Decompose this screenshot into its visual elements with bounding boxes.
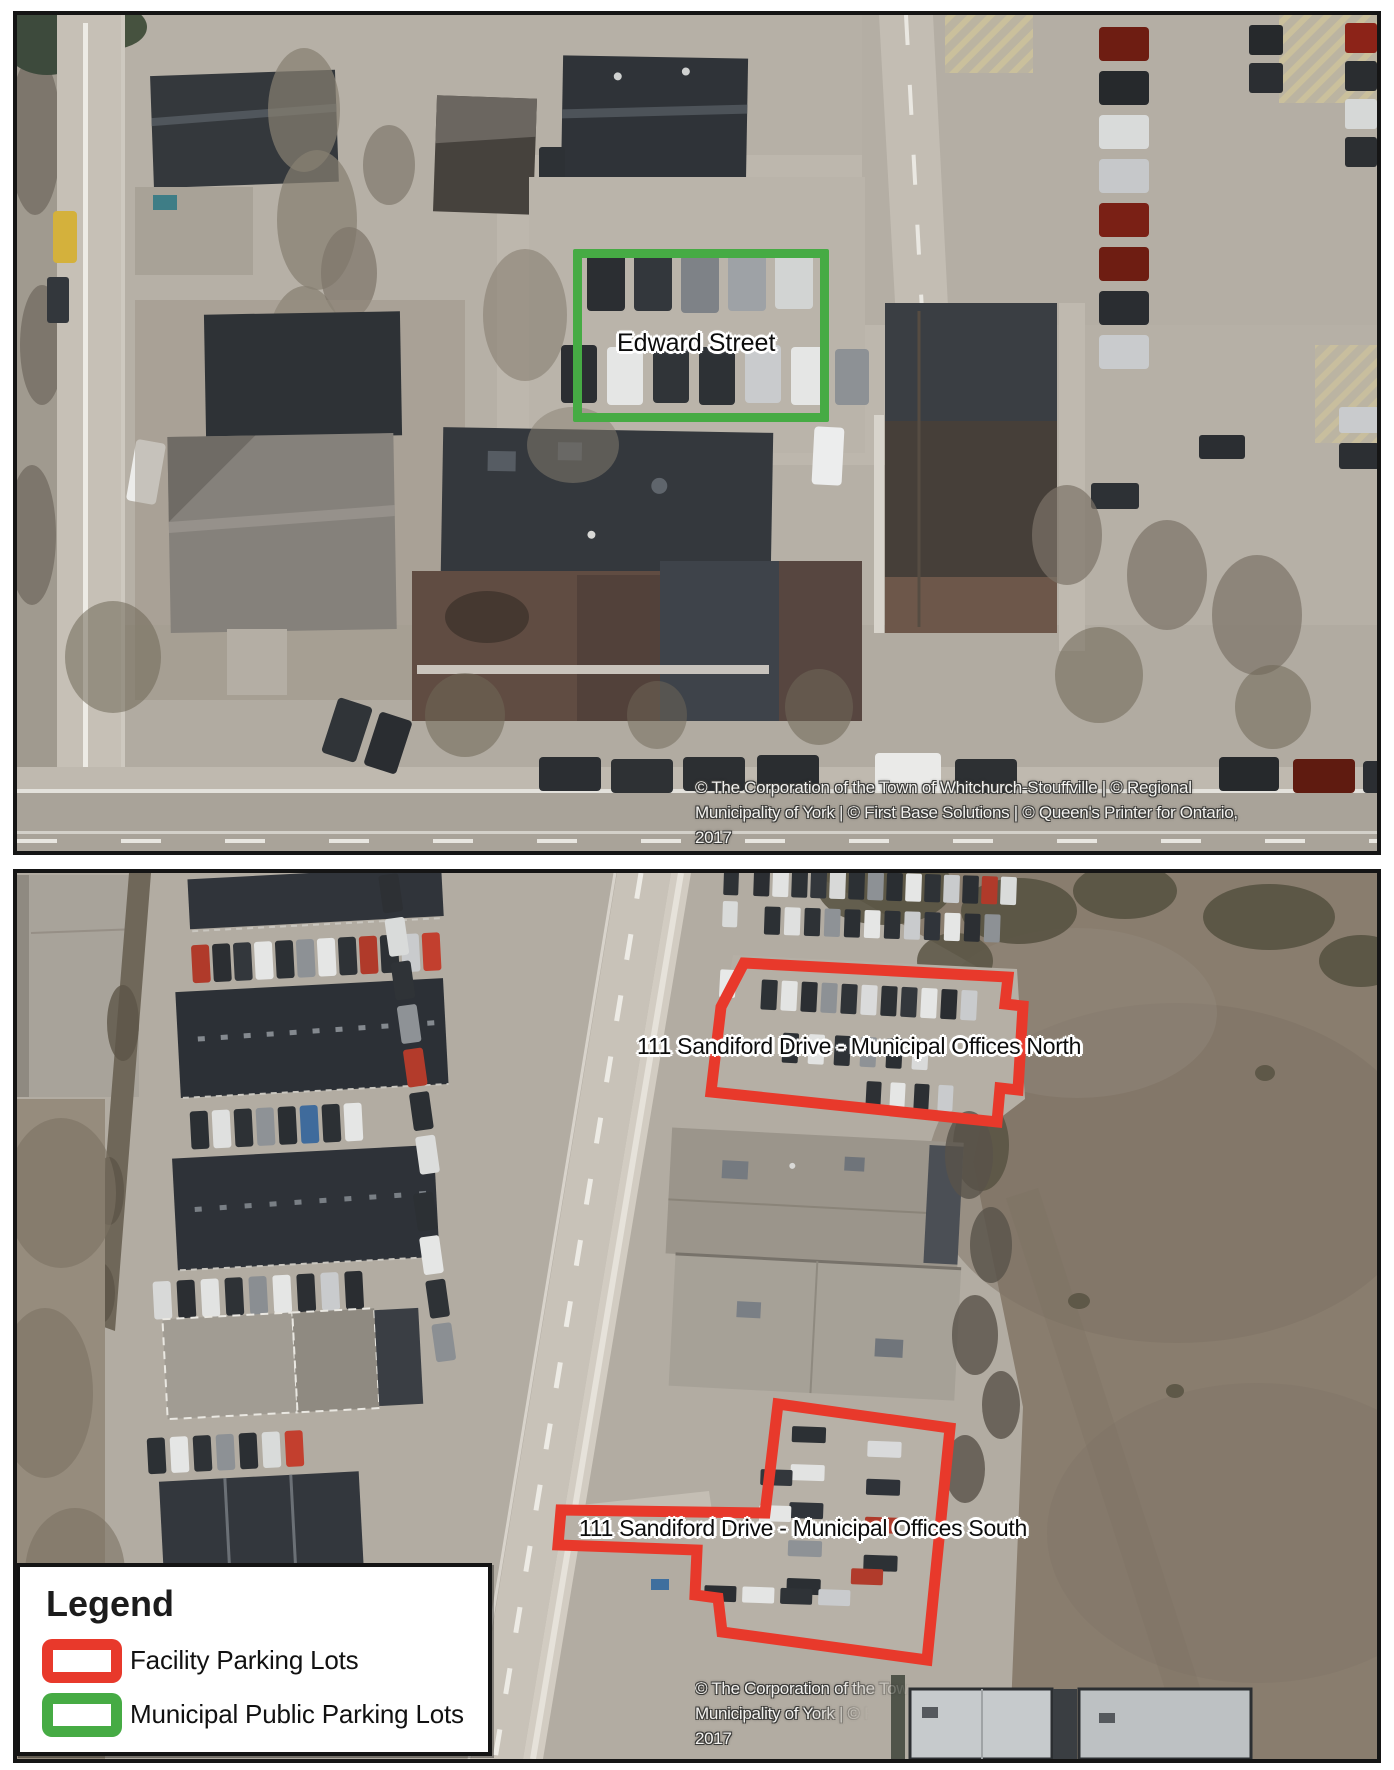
sandiford-north-label: 111 Sandiford Drive - Municipal Offices … [637, 1033, 1081, 1060]
copyright-line: © The Corporation of the Town [695, 1676, 917, 1701]
copyright-attribution-top: © The Corporation of the Town of Whitchu… [695, 775, 1238, 850]
copyright-line: 2017 [695, 828, 732, 847]
copyright-line: 2017 [695, 1729, 732, 1748]
copyright-line: Municipality of York | © First Base Solu… [695, 803, 1238, 822]
copyright-attribution-bottom: © The Corporation of the Town Municipali… [695, 1676, 917, 1751]
facility-parking-swatch [42, 1639, 122, 1683]
copyright-line: Municipality of York | © F [695, 1701, 874, 1726]
sandiford-south-label: 111 Sandiford Drive - Municipal Offices … [579, 1515, 1027, 1542]
legend-title: Legend [46, 1583, 174, 1625]
legend-item-label: Municipal Public Parking Lots [130, 1699, 464, 1730]
aerial-map-sandiford-drive: 111 Sandiford Drive - Municipal Offices … [13, 869, 1381, 1763]
legend-item-municipal: Municipal Public Parking Lots [20, 1693, 488, 1741]
legend: Legend Facility Parking Lots Municipal P… [16, 1563, 492, 1756]
legend-item-facility: Facility Parking Lots [20, 1639, 488, 1687]
legend-item-label: Facility Parking Lots [130, 1645, 358, 1676]
aerial-map-edward-street: Edward Street © The Corporation of the T… [13, 11, 1381, 855]
municipal-parking-swatch [42, 1693, 122, 1737]
copyright-line: © The Corporation of the Town of Whitchu… [695, 778, 1192, 797]
aerial-imagery-top [17, 15, 1377, 851]
edward-street-label: Edward Street [617, 329, 775, 358]
